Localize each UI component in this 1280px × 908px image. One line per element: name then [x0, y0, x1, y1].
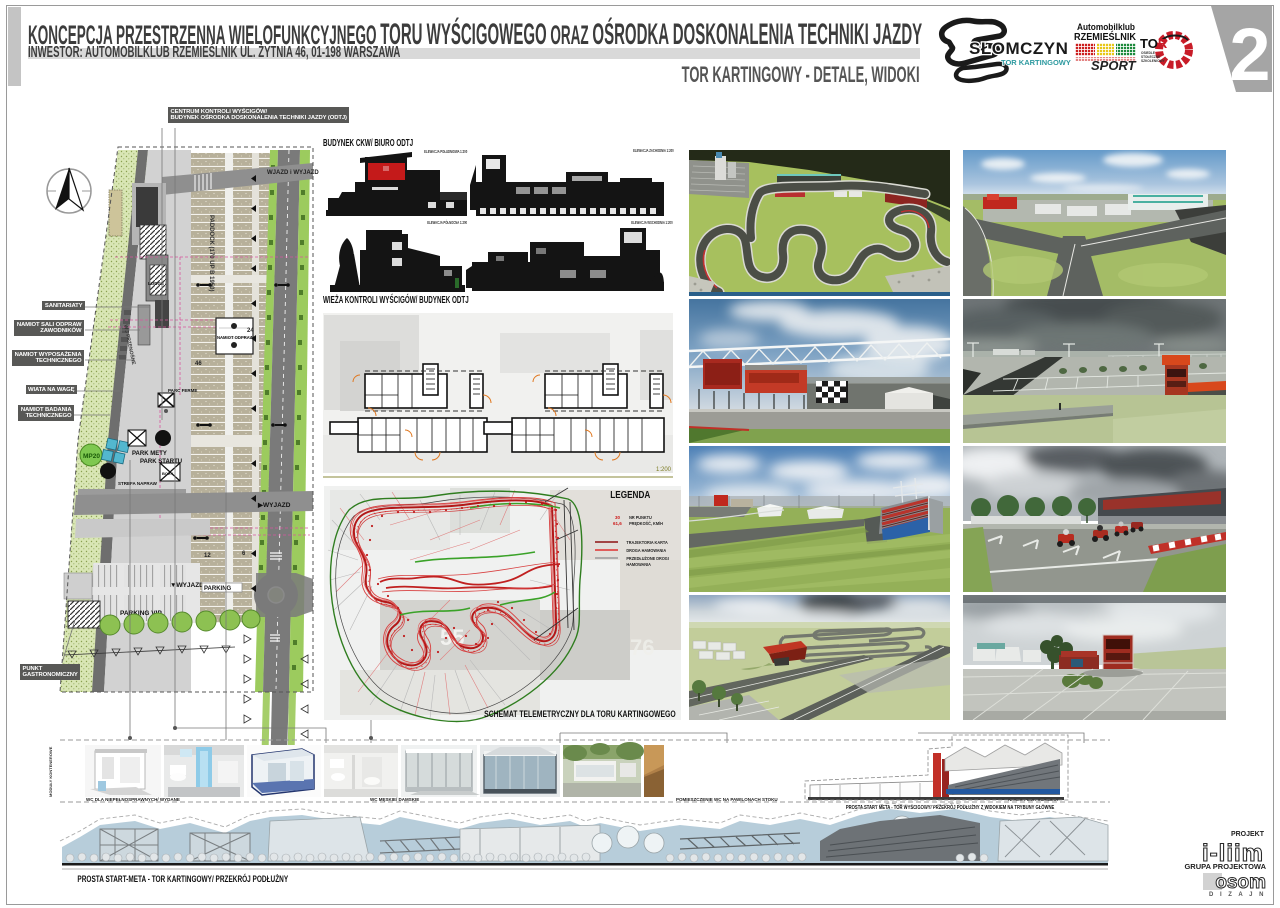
svg-text:76: 76 [630, 635, 654, 660]
svg-text:MODUŁY KONTENEROWE: MODUŁY KONTENEROWE [48, 746, 53, 797]
svg-text:ELEWACJA PÓŁNOCNA 1:200: ELEWACJA PÓŁNOCNA 1:200 [427, 219, 467, 225]
svg-text:WJAZD i WYJAZD: WJAZD i WYJAZD [267, 170, 319, 176]
svg-text:LEGENDA: LEGENDA [610, 489, 650, 500]
svg-text:NR PUNKTU: NR PUNKTU [629, 515, 652, 520]
svg-text:osom: osom [1215, 872, 1266, 893]
svg-text:PARKING: PARKING [204, 586, 232, 592]
svg-text:12: 12 [204, 553, 211, 559]
svg-text:DROGA HAMOWANIA: DROGA HAMOWANIA [626, 548, 666, 553]
svg-text:2: 2 [1229, 13, 1270, 92]
svg-text:GRUPA PROJEKTOWA: GRUPA PROJEKTOWA [1184, 862, 1266, 871]
svg-text:PARK METY: PARK METY [132, 451, 167, 457]
svg-text:SCHEMAT TELEMETRYCZNY DLA TORU: SCHEMAT TELEMETRYCZNY DLA TORU KARTINGOW… [484, 709, 676, 719]
svg-text:▶WYJAZD: ▶WYJAZD [257, 502, 291, 509]
svg-text:PROJEKT: PROJEKT [1231, 831, 1265, 838]
svg-text:HAMOWANIA: HAMOWANIA [626, 562, 651, 567]
svg-text:STREFA NAPRAW: STREFA NAPRAW [118, 481, 158, 486]
svg-text:WC DLA NIEPEŁNOSPRAWNYCH/ WYDA: WC DLA NIEPEŁNOSPRAWNYCH/ WYDANE [86, 797, 180, 802]
svg-text:NAMIOT ODPRAW: NAMIOT ODPRAW [217, 335, 254, 340]
svg-text:WIEŻA KONTROLI WYŚCIGÓW/ BUDYN: WIEŻA KONTROLI WYŚCIGÓW/ BUDYNEK ODTJ [323, 292, 469, 305]
svg-text:PADDOCK (170 UP B 1950): PADDOCK (170 UP B 1950) [208, 215, 214, 291]
svg-text:24: 24 [247, 328, 254, 334]
svg-text:ELEWACJA ZACHODNIA 1:200: ELEWACJA ZACHODNIA 1:200 [633, 148, 674, 153]
svg-text:46: 46 [195, 361, 202, 367]
svg-text:WC MĘSKIE/ DAMSKIE: WC MĘSKIE/ DAMSKIE [370, 797, 419, 802]
svg-text:RZEMIEŚLNIK: RZEMIEŚLNIK [1074, 30, 1136, 43]
svg-text:BOXY: BOXY [162, 471, 174, 476]
svg-text:TOR KARTINGOWY: TOR KARTINGOWY [1001, 58, 1071, 67]
svg-text:SPORT: SPORT [1091, 58, 1137, 73]
svg-text:ELEWACJA POŁUDNIOWA 1:200: ELEWACJA POŁUDNIOWA 1:200 [424, 149, 467, 154]
svg-text:SŁOMCZYN: SŁOMCZYN [969, 39, 1068, 58]
svg-text:TRAJEKTORIA KARTA: TRAJEKTORIA KARTA [626, 540, 667, 545]
svg-text:PROSTA START-META - TOR KARTIN: PROSTA START-META - TOR KARTINGOWY/ PRZE… [77, 874, 288, 884]
svg-text:POMIESZCZENIE WC NA PAWILONACH: POMIESZCZENIE WC NA PAWILONACH STOKU [676, 797, 778, 802]
svg-text:BUDYNEK CKW/ BIURO ODTJ: BUDYNEK CKW/ BIURO ODTJ [323, 136, 413, 148]
svg-text:30: 30 [615, 515, 621, 520]
svg-text:61,6: 61,6 [613, 521, 622, 526]
svg-text:▼WYJAZD: ▼WYJAZD [170, 582, 204, 589]
svg-text:PRZEDŁUŻONE DROGI: PRZEDŁUŻONE DROGI [626, 556, 669, 561]
svg-text:D I Z A J N: D I Z A J N [1209, 892, 1266, 898]
svg-text:SZKOLENIOWY: SZKOLENIOWY [1141, 59, 1166, 63]
svg-text:TOR: TOR [1140, 36, 1168, 51]
svg-text:PRĘDKOŚĆ, KM/H: PRĘDKOŚĆ, KM/H [629, 521, 663, 526]
svg-text:ELEWACJA WSCHODNIA 1:200: ELEWACJA WSCHODNIA 1:200 [631, 220, 672, 225]
svg-text:LODGE: LODGE [148, 281, 164, 286]
svg-text:MP20: MP20 [83, 453, 100, 460]
svg-text:PARC FERME: PARC FERME [168, 388, 197, 393]
